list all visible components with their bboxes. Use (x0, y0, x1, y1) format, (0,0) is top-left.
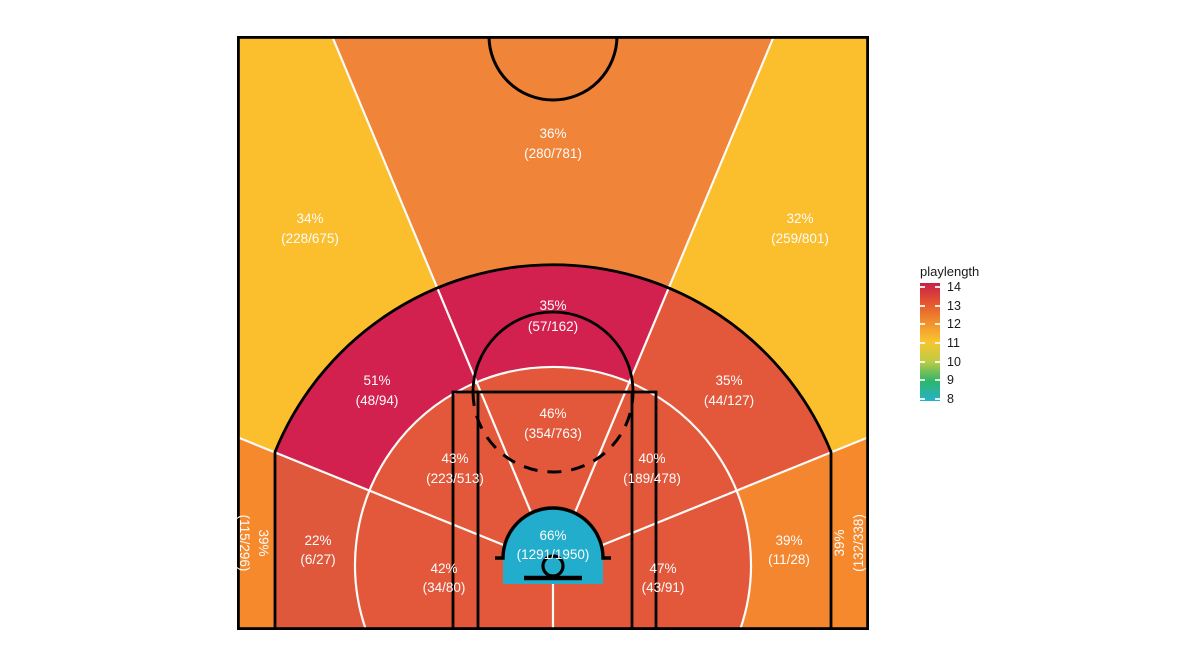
zone-label: (1291/1950) (517, 547, 590, 562)
zone-label: (57/162) (528, 319, 578, 334)
zone-label: (43/91) (642, 580, 685, 595)
zone-label: (44/127) (704, 393, 754, 408)
zone-label: (189/478) (623, 471, 681, 486)
legend-tick-mark (920, 379, 925, 381)
legend-body: 14 13 12 11 10 9 8 (920, 283, 981, 401)
legend-title: playlength (920, 264, 981, 279)
zone-label: 35% (539, 298, 566, 313)
playlength-legend: playlength 14 13 12 (920, 264, 981, 401)
zone-label: (259/801) (771, 231, 829, 246)
zone-label: (48/94) (356, 393, 399, 408)
zone-label: 47% (649, 561, 676, 576)
zone-label: 35% (715, 373, 742, 388)
legend-tick-label: 11 (947, 337, 960, 349)
legend-tick-mark (920, 323, 925, 325)
halfcourt-svg: 36% (280/781) 34% (228/675) 32% (259/801… (237, 36, 869, 630)
legend-tick-label: 9 (947, 374, 954, 386)
legend-tick-mark (935, 286, 940, 288)
zone-label: 36% (539, 126, 566, 141)
zone-label: 51% (363, 373, 390, 388)
zone-label: (228/675) (281, 231, 339, 246)
legend-tick-mark (935, 398, 940, 400)
zone-label: (280/781) (524, 146, 582, 161)
zone-label: 39% (832, 529, 847, 556)
zone-label: 42% (430, 561, 457, 576)
legend-tick-mark (920, 342, 925, 344)
legend-tick-mark (935, 323, 940, 325)
zone-label: 43% (441, 451, 468, 466)
legend-tick-mark (935, 342, 940, 344)
legend-tick-mark (920, 398, 925, 400)
zone-label: (34/80) (423, 580, 466, 595)
legend-tick-mark (920, 305, 925, 307)
shot-chart-figure: 36% (280/781) 34% (228/675) 32% (259/801… (0, 0, 1200, 670)
legend-tick-label: 13 (947, 300, 961, 312)
legend-tick-mark (935, 361, 940, 363)
zone-label: 46% (539, 406, 566, 421)
zone-label: 39% (775, 533, 802, 548)
zone-label: (132/338) (851, 514, 866, 572)
legend-tick-label: 8 (947, 393, 954, 405)
legend-tick-mark (935, 379, 940, 381)
legend-colorbar (920, 283, 940, 401)
legend-tick-label: 10 (947, 356, 961, 368)
zone-label: 66% (539, 528, 566, 543)
zone-label: 22% (304, 533, 331, 548)
zone-label: 34% (296, 211, 323, 226)
legend-tick-labels: 14 13 12 11 10 9 8 (947, 283, 981, 401)
zone-label: 32% (786, 211, 813, 226)
zone-label: (354/763) (524, 426, 582, 441)
zone-label: (6/27) (300, 552, 335, 567)
zone-label: 39% (256, 529, 271, 556)
zone-label: (223/513) (426, 471, 484, 486)
legend-tick-label: 12 (947, 318, 961, 330)
legend-tick-label: 14 (947, 281, 961, 293)
zone-label: (11/28) (768, 552, 810, 567)
zone-label: (115/296) (237, 515, 252, 572)
legend-tick-mark (935, 305, 940, 307)
zone-label: 40% (638, 451, 665, 466)
court-plot-area: 36% (280/781) 34% (228/675) 32% (259/801… (237, 36, 869, 630)
legend-tick-mark (920, 286, 925, 288)
legend-tick-mark (920, 361, 925, 363)
